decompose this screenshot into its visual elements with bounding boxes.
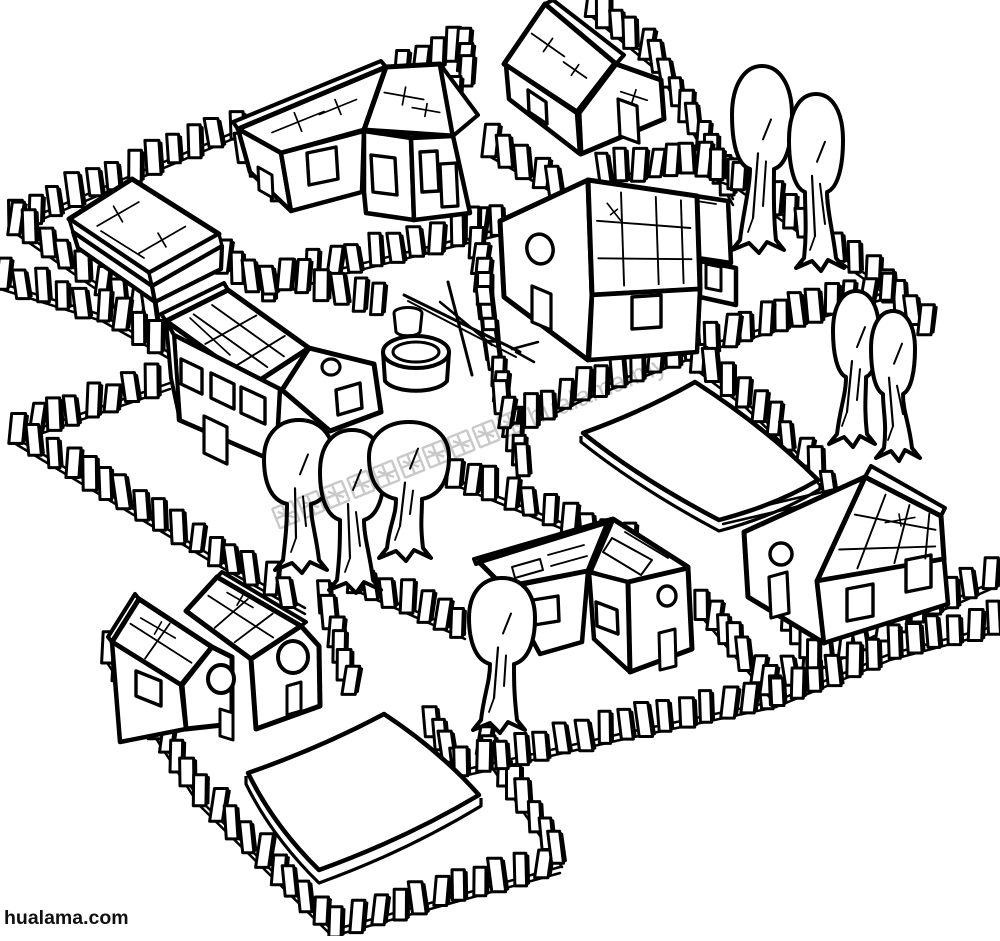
svg-text:hualama.com: hualama.com: [4, 907, 129, 929]
